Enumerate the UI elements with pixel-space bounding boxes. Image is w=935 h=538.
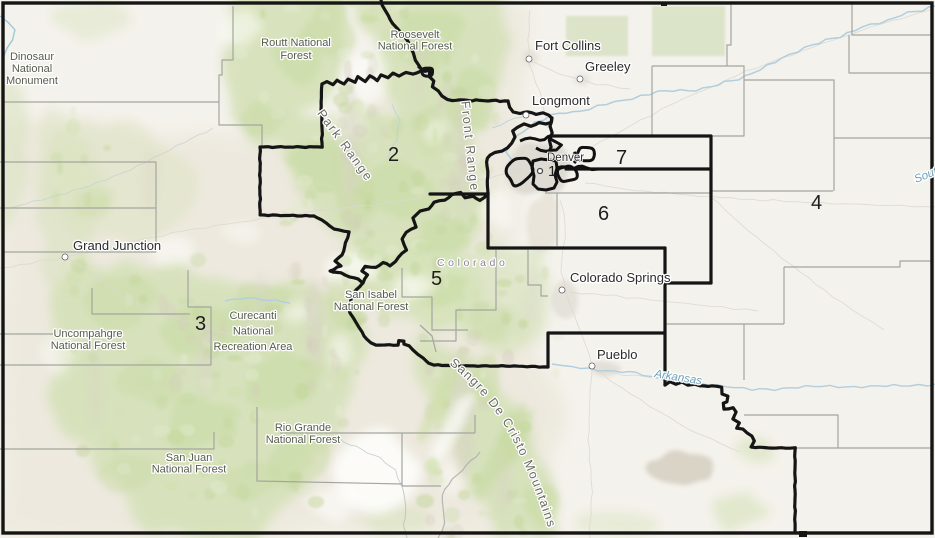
svg-text:2: 2 bbox=[388, 144, 399, 166]
svg-text:Longmont: Longmont bbox=[532, 93, 590, 108]
svg-text:6: 6 bbox=[598, 203, 609, 225]
svg-text:Grand Junction: Grand Junction bbox=[73, 238, 161, 253]
svg-text:Colorado Springs: Colorado Springs bbox=[570, 270, 671, 285]
svg-text:DinosaurNationalMonument: DinosaurNationalMonument bbox=[6, 51, 58, 87]
svg-text:Rio GrandeNational Forest: Rio GrandeNational Forest bbox=[266, 422, 341, 446]
svg-text:UncompahgreNational Forest: UncompahgreNational Forest bbox=[51, 328, 126, 352]
svg-text:Fort Collins: Fort Collins bbox=[535, 38, 601, 53]
svg-text:4: 4 bbox=[811, 192, 822, 214]
svg-text:5: 5 bbox=[431, 268, 442, 290]
svg-text:Greeley: Greeley bbox=[585, 59, 631, 74]
svg-text:3: 3 bbox=[195, 313, 206, 335]
svg-text:1: 1 bbox=[548, 163, 556, 180]
svg-text:Pueblo: Pueblo bbox=[597, 347, 637, 362]
svg-text:Colorado: Colorado bbox=[437, 257, 508, 269]
svg-text:7: 7 bbox=[616, 147, 627, 169]
